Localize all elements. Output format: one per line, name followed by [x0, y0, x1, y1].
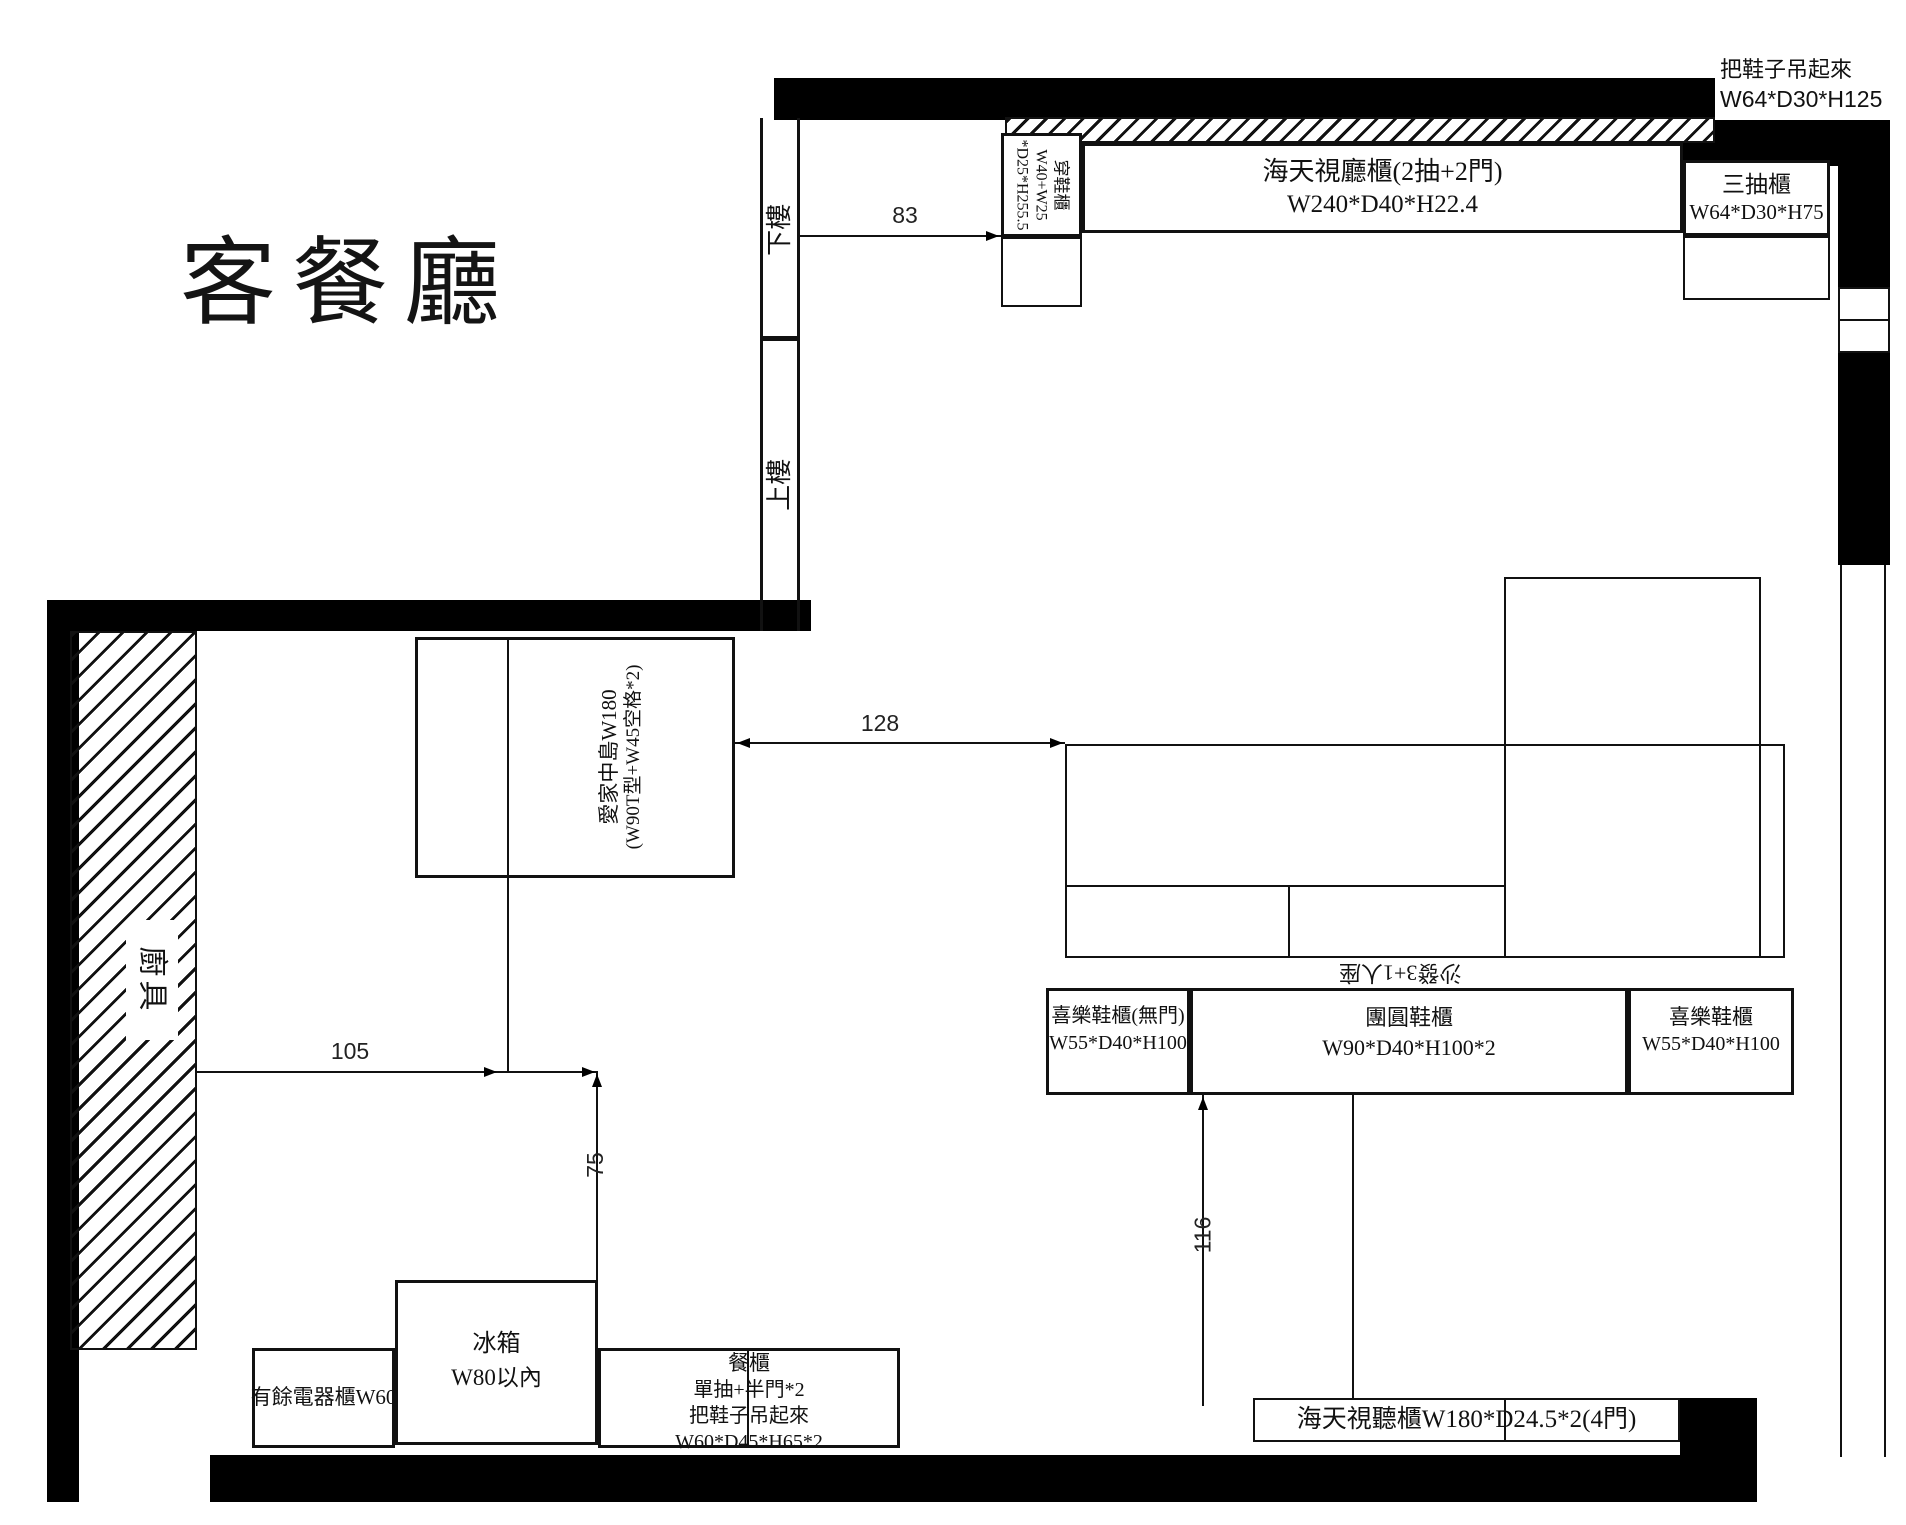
- dim83-label: 83: [845, 202, 965, 230]
- buffet-label: 餐櫃 單抽+半門*2 把鞋子吊起來 W60*D45*H65*2: [598, 1350, 900, 1450]
- wall-bottom-right-block: [1680, 1398, 1757, 1500]
- sofa-label-text: 沙發3+1人座: [1339, 958, 1461, 987]
- top-tv-spec: W240*D40*H22.4: [1287, 189, 1478, 222]
- island-extension-line: [507, 878, 509, 1073]
- buffet-name: 餐櫃: [728, 1350, 770, 1377]
- dim83-line: [800, 235, 1001, 237]
- buffet-line4: W60*D45*H65*2: [675, 1429, 823, 1455]
- top-counter-hatch: [1005, 117, 1715, 143]
- dim128-arrow-right: [1050, 738, 1063, 748]
- shoe-right-spec: W55*D40*H100: [1642, 1031, 1780, 1058]
- kitchen-label: 廚具: [126, 920, 178, 1040]
- stairs-up-label: 上樓: [755, 455, 805, 515]
- shoe-mid-name: 團圓鞋櫃: [1365, 1003, 1453, 1033]
- stair-right-line: [797, 118, 800, 631]
- shoe-cabinet-right: 喜樂鞋櫃 W55*D40*H100: [1628, 988, 1794, 1095]
- three-drawer-name: 三抽櫃: [1722, 171, 1791, 200]
- shoe-mid-spec: W90*D40*H100*2: [1322, 1033, 1496, 1063]
- shoe-cabinet-left: 喜樂鞋櫃(無門) W55*D40*H100: [1046, 988, 1190, 1095]
- shoe-left-name: 喜樂鞋櫃(無門): [1051, 1003, 1184, 1030]
- stair-left-line: [760, 118, 763, 631]
- shoe-right-name: 喜樂鞋櫃: [1669, 1003, 1753, 1031]
- stairs-down-text: 下樓: [763, 204, 797, 256]
- sofa-seat-divider: [1288, 885, 1290, 958]
- right-window-mullion: [1838, 319, 1890, 321]
- fridge: 冰箱 W80以內: [395, 1280, 598, 1445]
- entry-spec1: W40+W25: [1031, 149, 1050, 220]
- shoe-cabinet-mid: 團圓鞋櫃 W90*D40*H100*2: [1190, 988, 1628, 1095]
- dim116-label: 116: [1168, 1215, 1238, 1255]
- buffet-line2: 單抽+半門*2: [693, 1377, 804, 1403]
- three-drawer-cabinet: 三抽櫃 W64*D30*H75: [1683, 160, 1830, 236]
- bottom-tv-name: 海天視聽櫃W180*D24.5*2(4門): [1297, 1404, 1637, 1437]
- note-line1: 把鞋子吊起來: [1720, 56, 1906, 85]
- dim116-arrow: [1198, 1097, 1208, 1110]
- dim128-line: [735, 742, 1065, 744]
- dim128-label: 128: [820, 710, 940, 738]
- sofa-seat-line: [1065, 885, 1505, 887]
- note-hang-shoes: 把鞋子吊起來 W64*D30*H125: [1720, 56, 1906, 114]
- right-glass-line-inner: [1840, 565, 1842, 1457]
- island-spec: (W90T型+W45空格*2): [622, 665, 646, 850]
- stairs-up-text: 上樓: [763, 459, 797, 511]
- island-label: 愛家中島W180 (W90T型+W45空格*2): [591, 647, 651, 867]
- dim116-text: 116: [1188, 1217, 1218, 1254]
- dim105-line: [197, 1071, 597, 1073]
- kitchen-island: [415, 637, 735, 878]
- dim105-label: 105: [290, 1038, 410, 1066]
- kitchen-label-text: 廚具: [133, 946, 172, 1014]
- below-three-drawer-box: [1683, 236, 1830, 300]
- sofa-body: [1065, 744, 1785, 958]
- appliance-cabinet: 有餘電器櫃W60: [252, 1348, 395, 1448]
- island-divider: [507, 637, 509, 878]
- fridge-spec: W80以內: [451, 1362, 542, 1394]
- tv-wall-line: [1352, 1095, 1354, 1442]
- fridge-name: 冰箱: [473, 1328, 521, 1362]
- floorplan-living-dining: 客餐廳 把鞋子吊起來 W64*D30*H125 廚具 下樓 上樓 穿鞋櫃 W40…: [0, 0, 1906, 1525]
- note-line2: W64*D30*H125: [1720, 85, 1906, 115]
- dim105-arrow-a: [484, 1067, 497, 1077]
- wall-right-mid: [1838, 353, 1890, 565]
- island-name: 愛家中島W180: [596, 689, 622, 824]
- dim75-arrow: [592, 1074, 602, 1087]
- three-drawer-spec: W64*D30*H75: [1689, 199, 1823, 225]
- entry-spec2: *D25*H255.5: [1012, 139, 1031, 230]
- page-title: 客餐廳: [180, 205, 516, 344]
- top-tv-name: 海天視廳櫃(2抽+2門): [1263, 155, 1503, 189]
- top-tv-cabinet: 海天視廳櫃(2抽+2門) W240*D40*H22.4: [1082, 143, 1683, 233]
- wall-right-upper: [1838, 142, 1890, 287]
- bottom-tv-divider: [1504, 1398, 1506, 1442]
- dim128-arrow-left: [737, 738, 750, 748]
- bottom-tv-cabinet: 海天視聽櫃W180*D24.5*2(4門): [1253, 1398, 1680, 1442]
- dim75-text: 75: [581, 1152, 611, 1178]
- wall-top: [774, 78, 1715, 120]
- stair-divider: [760, 336, 800, 341]
- entry-name: 穿鞋櫃: [1051, 160, 1071, 211]
- wall-kitchen-top: [47, 600, 811, 631]
- stairs-down-label: 下樓: [755, 200, 805, 260]
- dim83-arrow: [986, 231, 999, 241]
- dim75-label: 75: [566, 1145, 626, 1185]
- appliance-name: 有餘電器櫃W60: [251, 1384, 397, 1411]
- buffet-line3: 把鞋子吊起來: [689, 1403, 809, 1429]
- sofa-label: 沙發3+1人座: [1310, 956, 1490, 988]
- right-glass-line-outer: [1884, 565, 1886, 1457]
- shoe-left-spec: W55*D40*H100: [1049, 1030, 1187, 1057]
- entry-shoe-cabinet-label: 穿鞋櫃 W40+W25 *D25*H255.5: [1012, 113, 1072, 258]
